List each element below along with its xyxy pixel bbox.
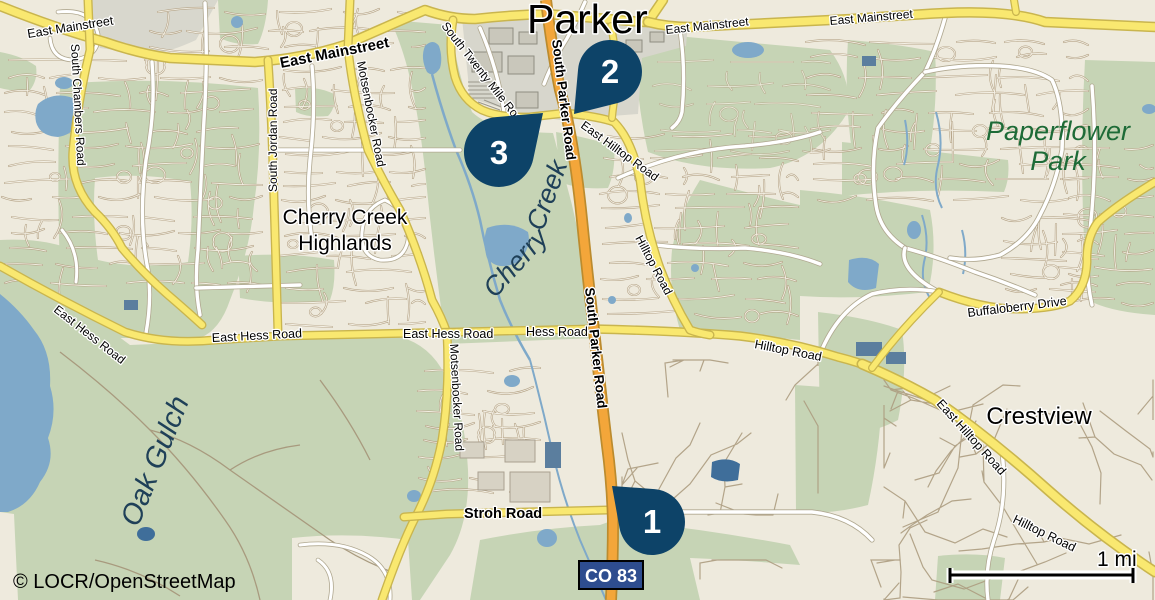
svg-text:Parker: Parker: [527, 0, 648, 42]
svg-text:Stroh Road: Stroh Road: [464, 506, 542, 522]
svg-text:Paperflower: Paperflower: [986, 116, 1131, 146]
svg-text:Cherry Creek: Cherry Creek: [283, 206, 408, 229]
svg-text:East Hess Road: East Hess Road: [403, 327, 493, 341]
svg-text:3: 3: [490, 134, 508, 171]
svg-text:Hess Road: Hess Road: [526, 325, 588, 339]
svg-text:Highlands: Highlands: [298, 232, 391, 255]
svg-text:© LOCR/OpenStreetMap: © LOCR/OpenStreetMap: [13, 571, 236, 593]
svg-text:2: 2: [601, 53, 619, 90]
svg-text:Park: Park: [1030, 146, 1087, 176]
svg-text:Crestview: Crestview: [986, 403, 1092, 430]
svg-text:1 mi: 1 mi: [1097, 548, 1137, 571]
svg-text:1: 1: [643, 503, 661, 540]
svg-text:CO 83: CO 83: [585, 566, 637, 586]
svg-text:South Jordan Road: South Jordan Road: [266, 89, 280, 192]
